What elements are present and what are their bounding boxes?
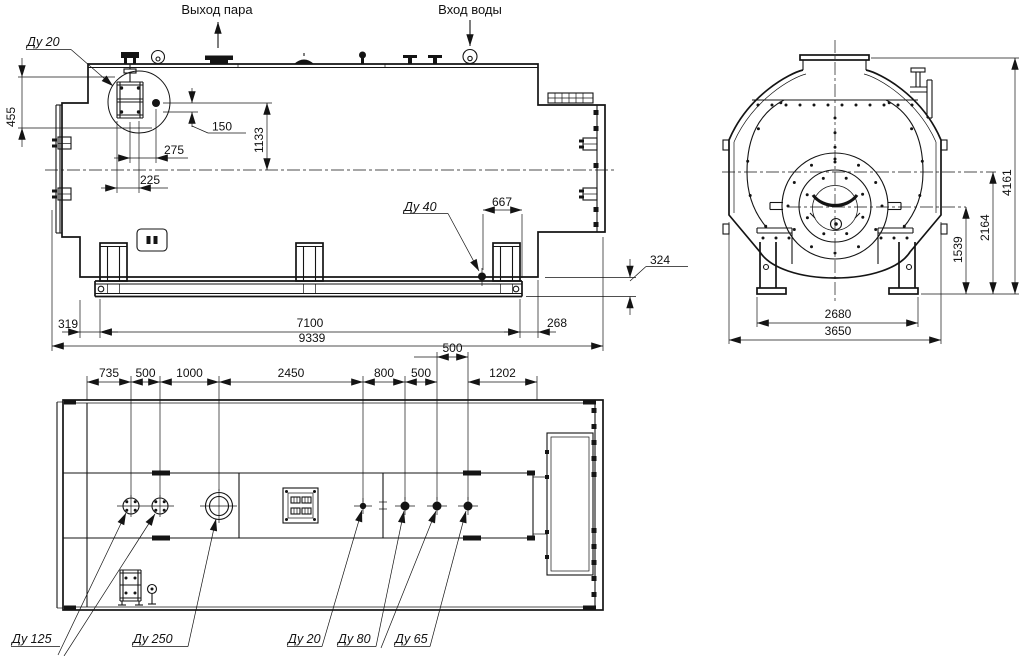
bolt-dots-shoulder-left [762,237,791,240]
dim-label: 500 [442,341,462,355]
bolt-dots-right-arc [888,101,924,228]
dim-label: 319 [58,317,78,331]
dim-label: 275 [164,143,184,157]
dim-label: 2680 [825,307,852,321]
callout-du20-plan: Ду 20 [286,510,362,647]
plan-view: 735 500 1000 2450 800 500 1202 500 Ду 12… [10,341,603,656]
dim-label: 225 [140,173,160,187]
callout-label: Ду 65 [393,632,428,646]
annotation-water-inlet: Вход воды [438,2,502,46]
callout-label: Ду 20 [286,632,321,646]
dim-label: 667 [492,195,512,209]
dim-label: 268 [547,316,567,330]
dim-275: 275 [114,109,188,163]
callout-label: Ду 250 [131,632,173,646]
dim-1133: 1133 [252,103,267,170]
callout-label: Ду 80 [336,632,371,646]
tee-fitting [403,55,417,58]
dim-2680: 2680 [757,297,918,327]
dim-label: 3650 [825,324,852,338]
dim-667: 667 [483,195,522,278]
callout-du80: Ду 80 [336,511,436,648]
callout-du40: Ду 40 [402,200,479,271]
gauge-bracket [910,68,932,118]
rear-flange-strip [548,93,599,227]
dim-label: 735 [99,366,119,380]
dim-225: 225 [101,121,168,193]
dim-label: 500 [411,366,431,380]
dim-label: 1133 [252,127,266,153]
callout-du20-side: Ду 20 [25,35,113,86]
side-view: 455 150 1133 275 [4,2,688,351]
callout-label: Ду 20 [25,35,60,49]
boiler-technical-drawing: 455 150 1133 275 [0,0,1024,656]
dim-label: 1000 [176,366,203,380]
nameplate [137,229,167,251]
dim-1539: 1539 [951,207,966,294]
bolt-dots-shoulder-right [880,237,909,240]
dim-label: 4161 [1000,169,1014,196]
dim-324: 324 [526,253,688,315]
dim-label: 2164 [978,214,992,241]
gauge-valve-detail [118,570,157,605]
dim-label: 324 [650,253,670,267]
callout-du65: Ду 65 [393,511,466,647]
skid-rail [95,281,522,297]
bolt-dots-left-arc [746,101,782,228]
steam-outlet-flange [205,56,233,61]
rear-strip-teeth [592,408,597,597]
saddle-supports [100,243,520,281]
drawing-canvas: 455 150 1133 275 [0,0,1024,656]
dim-label: 150 [212,120,232,134]
dome-fitting [294,60,314,65]
valve-fitting-icon [121,52,139,58]
top-fittings [121,50,477,65]
callout-label: Ду 125 [10,632,52,646]
du20-nozzle-dot [152,99,160,107]
inspection-hatch [283,488,318,523]
tee-fitting [428,55,442,58]
plan-dim-chain: 735 500 1000 2450 800 500 1202 500 [87,341,537,502]
dim-label: 1539 [951,236,965,263]
dim-150: 150 [163,88,272,134]
steam-outlet-label: Выход пара [181,2,253,17]
callout-label: Ду 40 [402,200,437,214]
dim-2164: 2164 [978,172,993,294]
dim-label: 9339 [299,331,326,345]
dim-label: 500 [135,366,155,380]
annotation-steam-outlet: Выход пара [181,2,253,48]
front-view: 4161 2164 1539 2680 3650 [722,40,1019,344]
dim-4161: 4161 [871,58,1019,294]
water-inlet-label: Вход воды [438,2,502,17]
small-nozzles [354,497,478,515]
nozzle-band [63,471,547,541]
dim-label: 7100 [297,316,324,330]
dim-label: 455 [4,107,18,127]
dim-label: 2450 [278,366,305,380]
dim-label: 800 [374,366,394,380]
du250-nozzle [200,489,237,523]
rear-frame [545,433,593,575]
dim-label: 1202 [489,366,516,380]
